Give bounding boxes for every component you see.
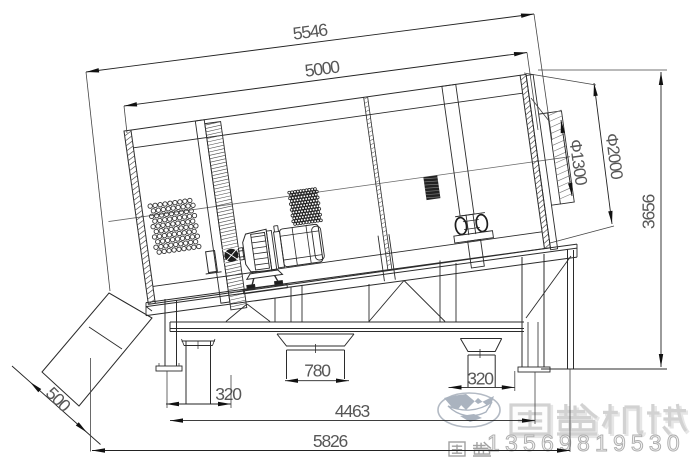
svg-text:320: 320 <box>215 384 242 404</box>
svg-text:13569819530: 13569819530 <box>487 430 685 456</box>
svg-text:780: 780 <box>304 361 331 381</box>
svg-text:5000: 5000 <box>304 56 342 81</box>
svg-text:5546: 5546 <box>292 19 329 43</box>
svg-text:4463: 4463 <box>335 401 370 421</box>
svg-text:3656: 3656 <box>639 194 659 229</box>
svg-text:5826: 5826 <box>313 431 348 451</box>
svg-text:320: 320 <box>467 369 494 389</box>
svg-text:500: 500 <box>42 383 75 416</box>
